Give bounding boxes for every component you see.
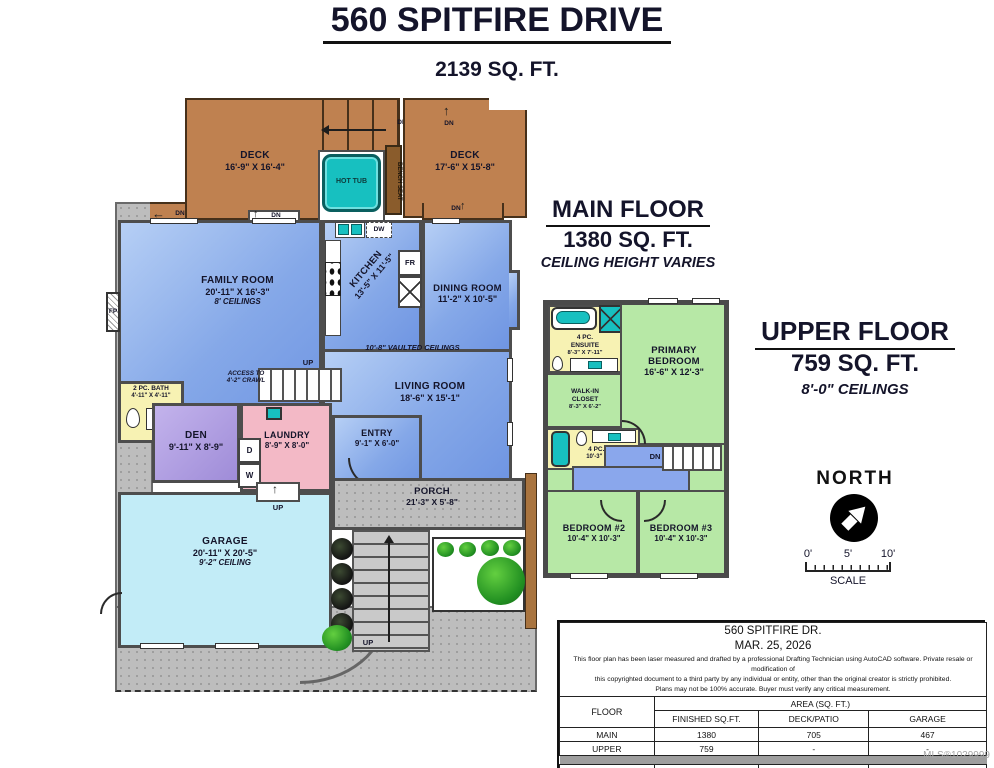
closet-dims: 8'-3" X 6'-2" — [551, 404, 619, 411]
bedroom-3-label: BEDROOM #3 10'-4" X 10'-3" — [638, 523, 724, 543]
scale-ruler — [805, 562, 891, 572]
kitchen-sink-basin-1 — [338, 224, 349, 235]
family-room-label: FAMILY ROOM 20'-11" X 16'-3" 8' CEILINGS — [150, 275, 325, 307]
deck-right-dn-arrow: ↑ — [443, 103, 450, 118]
row-upper-deck: - — [759, 742, 869, 756]
crawl-access-note: ACCESS TO 4'-2" CRAWL — [222, 370, 270, 385]
disclaimer-line-2: this copyrighted document to a third par… — [564, 675, 982, 685]
upper-floor-title: UPPER FLOOR — [755, 316, 955, 350]
shrub-icon-1 — [331, 538, 353, 560]
upper-floor-sqft: 759 SQ. FT. — [740, 350, 970, 378]
porch-stairs-up: UP — [358, 638, 378, 647]
laundry-sink-icon — [266, 407, 282, 420]
page-title: 560 SPITFIRE DRIVE — [0, 0, 994, 44]
bedroom-2-dims: 10'-4" X 10'-3" — [550, 534, 638, 543]
washer-label: W — [238, 471, 261, 481]
ensuite-toilet-icon — [552, 356, 563, 371]
upper-floor-heading: UPPER FLOOR — [740, 316, 970, 350]
north-compass-icon — [830, 494, 878, 542]
deck-stairs-top — [322, 98, 400, 152]
kitchen-sink-basin-2 — [351, 224, 362, 235]
ensuite-dims: 8'-3" X 7'-11" — [551, 350, 619, 357]
living-window-1 — [507, 358, 513, 382]
living-room-name: LIVING ROOM — [350, 381, 510, 393]
deck-right-label: DECK 17'-6" X 15'-8" — [405, 150, 525, 172]
garage-label: GARAGE 20'-11" X 20'-5" 9'-2" CEILING — [140, 536, 310, 568]
deck-right-dn-label: DN — [438, 120, 460, 128]
powder-room-label: 2 PC. BATH 4'-11" X 4'-11" — [120, 385, 182, 401]
entry-label: ENTRY 9'-1" X 6'-0" — [335, 428, 419, 448]
row-main-deck: 705 — [759, 728, 869, 742]
bush-icon-2 — [459, 542, 476, 557]
deck-stairs-arrow-line — [328, 129, 386, 131]
dining-room-dims: 11'-2" X 10'-5" — [425, 294, 510, 305]
dining-room-name: DINING ROOM — [425, 283, 510, 294]
upper-stairs-dn: DN — [645, 452, 665, 461]
scale-label: SCALE — [805, 575, 891, 588]
upper-window-top-2 — [692, 298, 720, 304]
table-floor-header: FLOOR — [560, 697, 655, 728]
closet-name1: WALK-IN — [551, 388, 619, 396]
dining-bay-window — [509, 270, 520, 330]
entry-dims: 9'-1" X 6'-0" — [335, 439, 419, 448]
disclaimer-line-3: Plans may not be 100% accurate. Buyer mu… — [564, 685, 982, 695]
den-label: DEN 9'-11" X 8'-9" — [155, 430, 237, 452]
bush-icon-large — [477, 557, 525, 605]
fridge-label: FR — [398, 258, 422, 267]
kitchen-pantry-x — [398, 276, 422, 308]
garage-ceiling: 9'-2" CEILING — [140, 558, 310, 567]
garage-door-arc — [100, 592, 122, 614]
page-title-text: 560 SPITFIRE DRIVE — [323, 0, 672, 44]
garage-window-1 — [140, 643, 184, 649]
ensuite-label: 4 PC. ENSUITE 8'-3" X 7'-11" — [551, 334, 619, 357]
garage-dims: 20'-11" X 20'-5" — [140, 548, 310, 559]
primary-bedroom-label: PRIMARY BEDROOM 16'-6" X 12'-3" — [625, 345, 723, 378]
scale-10: 10' — [876, 548, 900, 561]
ensuite-shower — [599, 305, 622, 333]
garage-step-landing — [256, 482, 300, 502]
row-upper-finished: 759 — [654, 742, 759, 756]
upper-floor-note: 8'-0" CEILINGS — [740, 381, 970, 399]
ensuite-name2: ENSUITE — [551, 342, 619, 350]
ensuite-tub-basin — [556, 311, 590, 324]
family-window-1 — [150, 218, 198, 224]
bedroom-2-label: BEDROOM #2 10'-4" X 10'-3" — [550, 523, 638, 543]
disclaimer-line-1: This floor plan has been laser measured … — [564, 655, 982, 675]
main-floor-heading: MAIN FLOOR — [512, 196, 744, 227]
area-table: 560 SPITFIRE DR. MAR. 25, 2026 This floo… — [559, 622, 987, 768]
bedroom-2-name: BEDROOM #2 — [550, 523, 638, 534]
family-room-dims: 20'-11" X 16'-3" — [150, 287, 325, 298]
table-address: 560 SPITFIRE DR. — [560, 623, 987, 639]
walk-in-closet-label: WALK-IN CLOSET 8'-3" X 6'-2" — [551, 388, 619, 411]
garage-room — [118, 492, 332, 648]
upper-window-bottom-2 — [660, 573, 698, 579]
family-window-2 — [252, 218, 296, 224]
main-stairs — [258, 368, 342, 402]
porch-stairs — [352, 530, 430, 652]
bench-seat-label: BENCH SEAT — [385, 148, 402, 214]
vaulted-ceiling-note: 10'-8" VAULTED CEILINGS — [345, 344, 480, 353]
den-name: DEN — [155, 430, 237, 442]
upper-window-bottom-1 — [570, 573, 608, 579]
table-col-finished: FINISHED SQ.FT. — [654, 711, 759, 728]
table-area-header: AREA (SQ. FT.) — [654, 697, 986, 711]
porch-stairs-arrow-line — [388, 542, 390, 642]
ensuite-name1: 4 PC. — [551, 334, 619, 342]
scale-0: 0' — [798, 548, 818, 561]
page-subtitle: 2139 SQ. FT. — [0, 58, 994, 83]
closet-name2: CLOSET — [551, 396, 619, 404]
row-main-floor: MAIN — [560, 728, 655, 742]
main-stairs-up: UP — [298, 358, 318, 367]
shrub-icon-3 — [331, 588, 353, 610]
dining-window-1 — [432, 218, 460, 224]
deck-stairs-arrowhead — [321, 125, 329, 135]
powder-room-name: 2 PC. BATH — [120, 385, 182, 393]
garage-up-arrow: ↑ — [272, 482, 278, 496]
porch-dims: 21'-3" X 5'-8" — [352, 497, 512, 507]
row-main-garage: 467 — [869, 728, 987, 742]
deck-left-label: DECK 16'-9" X 16'-4" — [195, 150, 315, 172]
table-disclaimer: This floor plan has been laser measured … — [560, 653, 987, 697]
entry-name: ENTRY — [335, 428, 419, 439]
den-dims: 9'-11" X 8'-9" — [155, 442, 237, 453]
upper-stairs — [662, 445, 722, 471]
fence-strip — [525, 473, 537, 629]
deck-right-dims: 17'-6" X 15'-8" — [405, 162, 525, 173]
family-room-name: FAMILY ROOM — [150, 275, 325, 287]
bush-icon-corner — [322, 625, 352, 651]
main-floor-title: MAIN FLOOR — [546, 196, 710, 227]
dining-room-label: DINING ROOM 11'-2" X 10'-5" — [425, 283, 510, 305]
dining-deck-dn: DN — [446, 205, 466, 213]
area-table-container: 560 SPITFIRE DR. MAR. 25, 2026 This floo… — [557, 620, 985, 768]
deck-left-name: DECK — [195, 150, 315, 162]
row-upper-floor: UPPER — [560, 742, 655, 756]
upper-bath-tub — [551, 431, 570, 467]
powder-toilet-icon — [126, 408, 140, 428]
table-date: MAR. 25, 2026 — [560, 638, 987, 653]
bush-icon-1 — [437, 542, 454, 557]
scale-5: 5' — [838, 548, 858, 561]
garage-window-2 — [215, 643, 259, 649]
porch-label: PORCH 21'-3" X 5'-8" — [352, 486, 512, 507]
bedroom-3-dims: 10'-4" X 10'-3" — [638, 534, 724, 543]
table-col-garage: GARAGE — [869, 711, 987, 728]
kitchen-stove — [325, 262, 341, 296]
deck-right-name: DECK — [405, 150, 525, 162]
living-room-label: LIVING ROOM 18'-6" X 15'-1" — [350, 381, 510, 403]
north-compass-arrow — [831, 495, 876, 540]
dryer-label: D — [238, 446, 261, 456]
deck-exit-left-dn: DN — [170, 210, 190, 218]
shrub-icon-2 — [331, 563, 353, 585]
garage-name: GARAGE — [140, 536, 310, 548]
north-label: NORTH — [805, 468, 905, 490]
living-room-dims: 18'-6" X 15'-1" — [350, 393, 510, 404]
main-floor-note: CEILING HEIGHT VARIES — [512, 255, 744, 272]
deck-right-top-notch — [489, 96, 529, 110]
upper-bath-sink-icon — [608, 433, 621, 441]
primary-dims: 16'-6" X 12'-3" — [625, 367, 723, 378]
powder-room-dims: 4'-11" X 4'-11" — [120, 393, 182, 401]
living-window-2 — [507, 422, 513, 446]
bush-icon-4 — [503, 540, 521, 556]
bedroom-3-name: BEDROOM #3 — [638, 523, 724, 534]
porch-stairs-arrowhead — [384, 535, 394, 543]
deck-left-dims: 16'-9" X 16'-4" — [195, 162, 315, 173]
mls-watermark: MLS®1029999 — [885, 750, 990, 762]
row-main-finished: 1380 — [654, 728, 759, 742]
porch-name: PORCH — [352, 486, 512, 497]
table-row-main: MAIN 1380 705 467 — [560, 728, 987, 742]
garage-up-label: UP — [268, 503, 288, 512]
family-room-ceiling: 8' CEILINGS — [150, 297, 325, 306]
ensuite-sink-icon — [588, 361, 602, 369]
bush-icon-3 — [481, 540, 499, 556]
dishwasher-label: DW — [366, 226, 392, 234]
hot-tub-label: HOT TUB — [322, 178, 381, 186]
table-col-deck: DECK/PATIO — [759, 711, 869, 728]
upper-window-top-1 — [648, 298, 678, 304]
primary-name1: PRIMARY — [625, 345, 723, 356]
main-floor-sqft: 1380 SQ. FT. — [512, 227, 744, 253]
floor-plan-sheet: 560 SPITFIRE DRIVE 2139 SQ. FT. DECK 16'… — [0, 0, 994, 768]
primary-name2: BEDROOM — [625, 356, 723, 367]
fireplace-label: FP — [104, 308, 122, 316]
upper-bath-toilet-icon — [576, 431, 587, 446]
